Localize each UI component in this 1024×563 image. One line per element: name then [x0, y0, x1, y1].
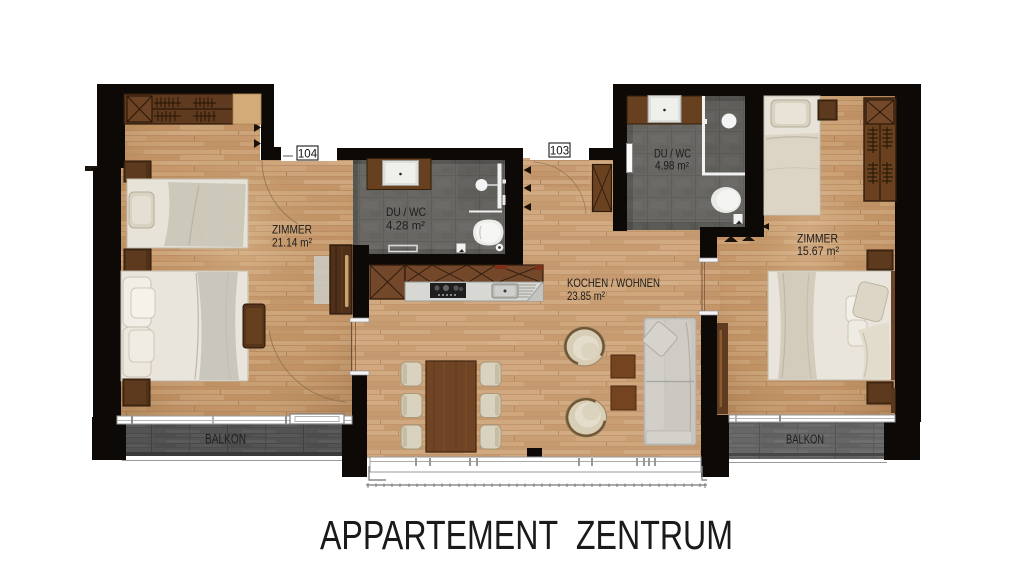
svg-text:103: 103 [550, 145, 569, 157]
svg-text:4.28 m²: 4.28 m² [386, 219, 425, 233]
svg-text:4.98 m²: 4.98 m² [655, 161, 689, 173]
svg-text:ZIMMER: ZIMMER [272, 223, 312, 237]
svg-text:21.14 m²: 21.14 m² [272, 236, 312, 250]
svg-text:APPARTEMENT ZENTRUM: APPARTEMENT ZENTRUM [320, 512, 733, 558]
svg-text:DU / WC: DU / WC [654, 149, 691, 161]
svg-text:23.85 m²: 23.85 m² [567, 289, 605, 303]
svg-text:BALKON: BALKON [786, 432, 824, 447]
svg-text:KOCHEN / WOHNEN: KOCHEN / WOHNEN [567, 276, 660, 290]
svg-text:15.67 m²: 15.67 m² [797, 244, 839, 258]
svg-text:BALKON: BALKON [205, 432, 246, 447]
svg-text:104: 104 [298, 148, 318, 160]
svg-text:DU / WC: DU / WC [386, 205, 426, 219]
